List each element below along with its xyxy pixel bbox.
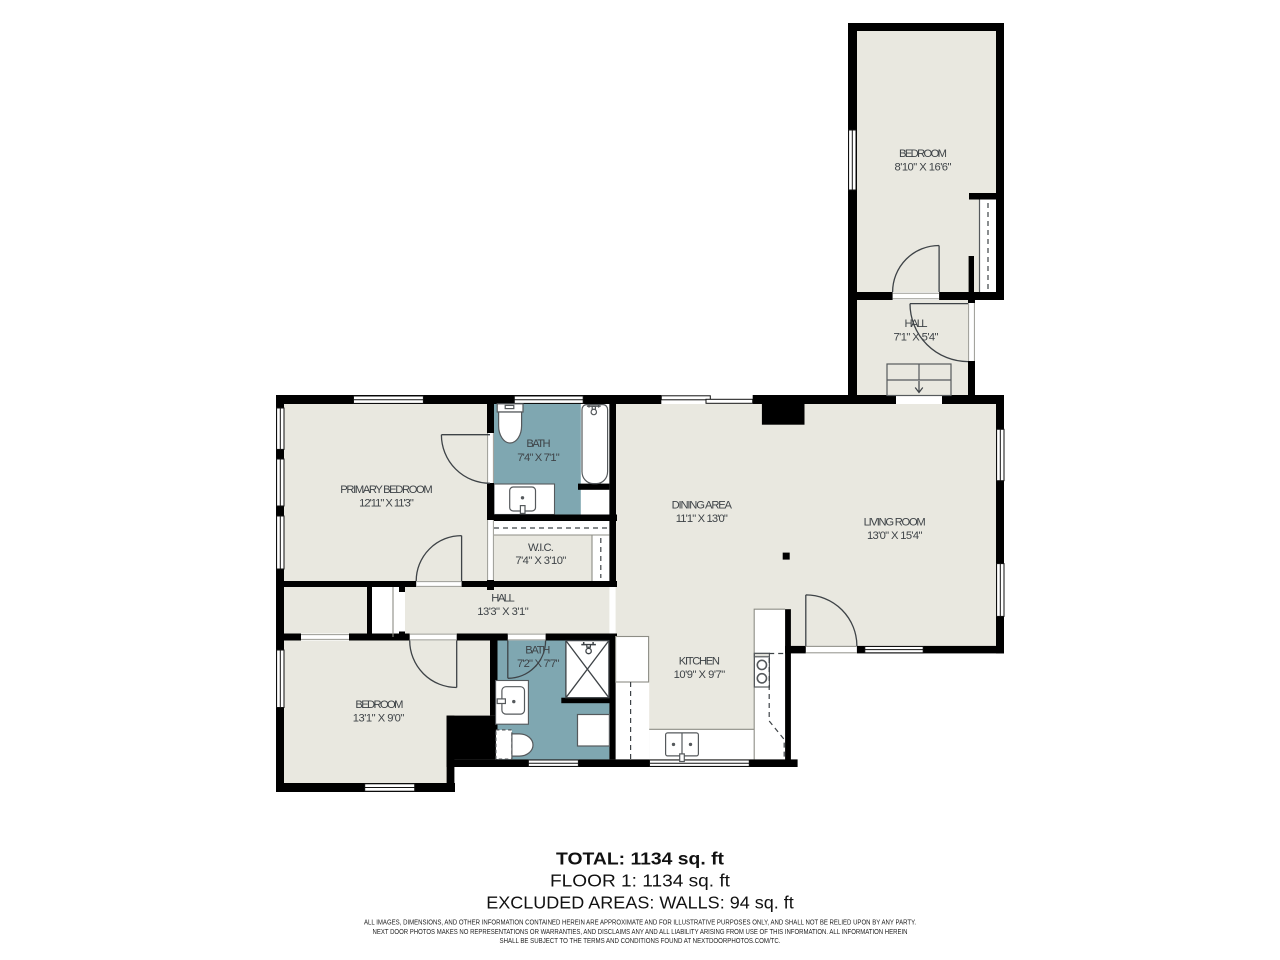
svg-text:EXCLUDED AREAS: WALLS: 94 sq.: EXCLUDED AREAS: WALLS: 94 sq. ft xyxy=(486,893,794,913)
svg-text:W.I.C.: W.I.C. xyxy=(528,542,554,554)
svg-text:8'10" X 16'6": 8'10" X 16'6" xyxy=(895,162,952,174)
svg-text:13'0" X 15'4": 13'0" X 15'4" xyxy=(867,530,923,542)
svg-text:13'1" X 9'0": 13'1" X 9'0" xyxy=(353,713,405,725)
svg-text:BATH: BATH xyxy=(526,438,550,450)
svg-text:SHALL BE SUBJECT TO THE TERMS: SHALL BE SUBJECT TO THE TERMS AND CONDIT… xyxy=(500,936,781,945)
svg-text:DINING AREA: DINING AREA xyxy=(672,500,733,512)
svg-text:HALL: HALL xyxy=(491,593,514,605)
svg-text:ALL IMAGES, DIMENSIONS, AND OT: ALL IMAGES, DIMENSIONS, AND OTHER INFORM… xyxy=(364,917,916,926)
svg-text:HALL: HALL xyxy=(905,318,928,330)
svg-text:7'4" X 3'10": 7'4" X 3'10" xyxy=(515,555,566,567)
svg-text:NEXT DOOR PHOTOS MAKES NO REPR: NEXT DOOR PHOTOS MAKES NO REPRESENTATION… xyxy=(373,927,908,936)
svg-text:11'1" X 13'0": 11'1" X 13'0" xyxy=(676,513,728,525)
svg-text:10'9" X 9'7": 10'9" X 9'7" xyxy=(674,669,726,681)
svg-text:TOTAL: 1134 sq. ft: TOTAL: 1134 sq. ft xyxy=(556,849,724,869)
svg-text:12'11" X 11'3": 12'11" X 11'3" xyxy=(359,497,414,509)
svg-text:LIVING ROOM: LIVING ROOM xyxy=(864,517,926,529)
svg-text:PRIMARY BEDROOM: PRIMARY BEDROOM xyxy=(340,484,432,496)
svg-text:BEDROOM: BEDROOM xyxy=(899,148,947,160)
svg-text:7'1" X 5'4": 7'1" X 5'4" xyxy=(894,332,939,344)
svg-text:7'4" X 7'1": 7'4" X 7'1" xyxy=(517,452,560,464)
svg-text:7'2" X 7'7": 7'2" X 7'7" xyxy=(517,658,560,670)
svg-text:BATH: BATH xyxy=(525,645,550,657)
svg-text:13'3" X 3'1": 13'3" X 3'1" xyxy=(477,606,529,618)
svg-text:FLOOR 1: 1134 sq. ft: FLOOR 1: 1134 sq. ft xyxy=(550,870,730,890)
svg-text:BEDROOM: BEDROOM xyxy=(355,699,403,711)
svg-text:KITCHEN: KITCHEN xyxy=(679,656,720,668)
